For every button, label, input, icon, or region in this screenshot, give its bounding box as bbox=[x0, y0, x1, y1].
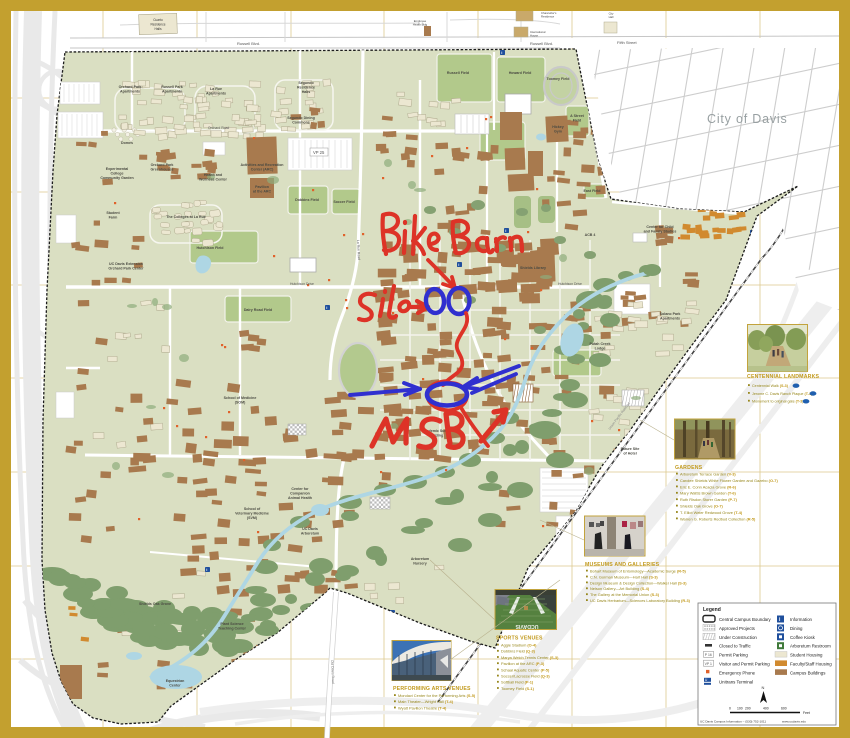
svg-text:Hutchison Drive: Hutchison Drive bbox=[558, 282, 582, 286]
svg-text:Hutchison Field: Hutchison Field bbox=[197, 246, 224, 250]
svg-text:Farm: Farm bbox=[109, 216, 118, 220]
svg-text:Orchard Park: Orchard Park bbox=[119, 85, 142, 89]
svg-text:The Colleges at La Rue: The Colleges at La Rue bbox=[166, 215, 206, 219]
svg-text:Mondavi Center for the Perform: Mondavi Center for the Performing Arts (… bbox=[398, 693, 476, 698]
svg-text:Aggie Stadium (O-4): Aggie Stadium (O-4) bbox=[501, 643, 537, 648]
svg-text:Community Garden: Community Garden bbox=[100, 176, 133, 180]
svg-text:Greenhouses: Greenhouses bbox=[151, 168, 174, 172]
svg-text:Dobbins Field: Dobbins Field bbox=[295, 198, 319, 202]
svg-text:Center (ARC): Center (ARC) bbox=[251, 168, 274, 172]
svg-text:Approved Projects: Approved Projects bbox=[719, 626, 756, 631]
svg-text:Arboretum: Arboretum bbox=[411, 557, 429, 561]
svg-text:Health Bldg: Health Bldg bbox=[413, 23, 428, 27]
svg-text:Commons: Commons bbox=[292, 121, 310, 125]
svg-text:(SVM): (SVM) bbox=[247, 516, 258, 520]
svg-text:Campus Buildings: Campus Buildings bbox=[790, 670, 826, 675]
svg-text:Cuarto: Cuarto bbox=[153, 18, 163, 22]
svg-text:Arboretum Restroom: Arboretum Restroom bbox=[790, 644, 831, 649]
svg-text:VP 25: VP 25 bbox=[313, 150, 325, 155]
svg-text:East Field: East Field bbox=[584, 189, 601, 193]
svg-text:City of Davis: City of Davis bbox=[707, 112, 788, 126]
svg-text:Wellness Center: Wellness Center bbox=[199, 178, 227, 182]
svg-text:Teaching Center: Teaching Center bbox=[218, 627, 246, 631]
svg-text:House: House bbox=[530, 34, 539, 38]
svg-text:Orchard Park Center: Orchard Park Center bbox=[108, 267, 144, 271]
svg-text:T. Elliot Weier Redwood Grove: T. Elliot Weier Redwood Grove (T-4) bbox=[680, 510, 743, 515]
svg-text:Center for Child: Center for Child bbox=[646, 225, 673, 229]
svg-text:Plant Science: Plant Science bbox=[220, 622, 243, 626]
svg-text:Coffee Kiosk: Coffee Kiosk bbox=[790, 635, 816, 640]
svg-text:Design Museum & Design Collect: Design Museum & Design Collection—Walker… bbox=[590, 580, 687, 585]
svg-text:Central Campus Boundary: Central Campus Boundary bbox=[719, 617, 772, 622]
svg-text:Residence: Residence bbox=[541, 15, 555, 19]
svg-text:Equestrian: Equestrian bbox=[166, 679, 185, 683]
svg-text:Apartments: Apartments bbox=[162, 90, 182, 94]
svg-text:Closed to Traffic: Closed to Traffic bbox=[719, 644, 751, 649]
svg-text:Toomey Field: Toomey Field bbox=[547, 77, 570, 81]
svg-text:400: 400 bbox=[763, 707, 769, 711]
svg-text:Residence: Residence bbox=[150, 23, 165, 27]
svg-text:Information: Information bbox=[790, 617, 813, 622]
svg-text:Dairy Road Field: Dairy Road Field bbox=[244, 308, 272, 312]
svg-text:of Hotel: of Hotel bbox=[623, 452, 636, 456]
svg-text:Russell Blvd.: Russell Blvd. bbox=[530, 41, 553, 46]
svg-text:i: i bbox=[458, 262, 459, 267]
svg-text:i: i bbox=[206, 567, 207, 572]
svg-text:Shields Oak Grove: Shields Oak Grove bbox=[139, 602, 171, 606]
svg-text:Visitor and Permit Parking: Visitor and Permit Parking bbox=[719, 662, 770, 667]
svg-text:Shields Library: Shields Library bbox=[520, 266, 546, 270]
svg-text:Activities and Recreation: Activities and Recreation bbox=[241, 163, 284, 167]
svg-text:College: College bbox=[111, 172, 124, 176]
svg-text:Eric E. Conn Acacia Grove (R-6: Eric E. Conn Acacia Grove (R-6) bbox=[680, 484, 737, 489]
svg-text:UC Davis Extension: UC Davis Extension bbox=[109, 262, 143, 266]
svg-text:Ruth Risdon Storer Garden (P-7: Ruth Risdon Storer Garden (P-7) bbox=[680, 497, 738, 502]
svg-text:Bohart Museum of Entomology—Ac: Bohart Museum of Entomology—Academic Sur… bbox=[590, 569, 687, 574]
svg-text:i: i bbox=[501, 50, 502, 55]
svg-text:200: 200 bbox=[745, 707, 751, 711]
svg-text:N: N bbox=[762, 685, 765, 690]
svg-text:C.N. Gorman Museum—Hart Hall (: C.N. Gorman Museum—Hart Hall (S-3) bbox=[590, 574, 658, 579]
svg-text:Centennial Walk (S-3): Centennial Walk (S-3) bbox=[752, 384, 789, 388]
svg-text:Pavilion: Pavilion bbox=[255, 185, 269, 189]
svg-text:Carolee Shields White Flower G: Carolee Shields White Flower Garden and … bbox=[680, 478, 778, 483]
svg-text:Dining: Dining bbox=[790, 626, 803, 631]
svg-text:SPORTS VENUES: SPORTS VENUES bbox=[496, 636, 543, 642]
svg-text:UC Davis: UC Davis bbox=[302, 527, 318, 531]
svg-text:600: 600 bbox=[781, 707, 787, 711]
svg-text:CENTENNIAL LANDMARKS: CENTENNIAL LANDMARKS bbox=[747, 374, 820, 380]
svg-text:Wyatt Pavilion Theatre (T-4): Wyatt Pavilion Theatre (T-4) bbox=[398, 705, 447, 710]
svg-text:Schaal Aquatic Center (P-5): Schaal Aquatic Center (P-5) bbox=[501, 667, 550, 672]
svg-text:A Street: A Street bbox=[570, 114, 584, 118]
svg-text:PERFORMING ARTS VENUES: PERFORMING ARTS VENUES bbox=[393, 686, 471, 692]
svg-text:Feet: Feet bbox=[803, 711, 810, 715]
svg-text:Softball Field (P-1): Softball Field (P-1) bbox=[501, 680, 534, 685]
svg-text:Halls: Halls bbox=[302, 90, 311, 94]
svg-text:Apartments: Apartments bbox=[120, 90, 140, 94]
svg-text:i: i bbox=[326, 305, 327, 310]
svg-text:Faculty/Staff Housing: Faculty/Staff Housing bbox=[790, 662, 832, 667]
svg-text:Solano Park: Solano Park bbox=[660, 312, 681, 316]
svg-text:Residence: Residence bbox=[297, 86, 315, 90]
svg-text:100: 100 bbox=[737, 707, 743, 711]
svg-text:Mary Wattis Brown Garden (T-6): Mary Wattis Brown Garden (T-6) bbox=[680, 491, 737, 496]
svg-text:Emergency Phone: Emergency Phone bbox=[719, 670, 756, 675]
svg-text:Student: Student bbox=[106, 211, 120, 215]
svg-text:Russell Blvd.: Russell Blvd. bbox=[237, 41, 260, 46]
svg-text:UC Davis Campus Information –: UC Davis Campus Information – (530) 752-… bbox=[700, 720, 766, 724]
svg-text:Russell Park: Russell Park bbox=[161, 85, 183, 89]
svg-text:Toomey Field (S-1): Toomey Field (S-1) bbox=[501, 686, 535, 691]
svg-text:Center: Center bbox=[169, 684, 181, 688]
svg-text:Segundo: Segundo bbox=[298, 81, 314, 85]
svg-text:Main Theater—Wright Hall (T-4): Main Theater—Wright Hall (T-4) bbox=[398, 699, 454, 704]
svg-text:Russell Field: Russell Field bbox=[447, 71, 469, 75]
svg-text:Hall: Hall bbox=[609, 15, 614, 19]
svg-text:P 16: P 16 bbox=[705, 653, 712, 657]
svg-text:La Rue: La Rue bbox=[210, 87, 222, 91]
svg-text:Pavilion at the ARC (P-3): Pavilion at the ARC (P-3) bbox=[501, 661, 545, 666]
svg-text:Orchard Road: Orchard Road bbox=[208, 126, 229, 130]
svg-text:Future Site: Future Site bbox=[621, 447, 640, 451]
svg-text:Shields Oak Grove (O-7): Shields Oak Grove (O-7) bbox=[680, 504, 724, 509]
svg-text:Dobbins Field (Q-3): Dobbins Field (Q-3) bbox=[501, 649, 536, 654]
svg-text:(SOM): (SOM) bbox=[235, 401, 246, 405]
svg-text:Companion: Companion bbox=[290, 492, 310, 496]
svg-text:i: i bbox=[505, 228, 506, 233]
svg-text:Warren G. Roberts Redbud Colle: Warren G. Roberts Redbud Collection (R-5… bbox=[680, 516, 756, 521]
svg-text:UCDAVIS: UCDAVIS bbox=[515, 623, 539, 629]
svg-text:Marya Welch Tennis Center (S-3: Marya Welch Tennis Center (S-3) bbox=[501, 655, 559, 660]
svg-text:Putah Creek: Putah Creek bbox=[590, 342, 611, 346]
svg-text:0: 0 bbox=[729, 707, 731, 711]
svg-text:GARDENS: GARDENS bbox=[675, 465, 703, 471]
svg-text:at the ARC: at the ARC bbox=[253, 190, 272, 194]
svg-text:Soccer Field: Soccer Field bbox=[333, 200, 354, 204]
svg-text:Gym: Gym bbox=[554, 130, 562, 134]
svg-text:Segundo Dining: Segundo Dining bbox=[287, 116, 315, 120]
svg-text:Center for: Center for bbox=[291, 487, 309, 491]
svg-text:Nelson Gallery—Art Building (S: Nelson Gallery—Art Building (S-4) bbox=[590, 586, 650, 591]
svg-text:Fifth Street: Fifth Street bbox=[617, 40, 637, 45]
svg-text:Legend: Legend bbox=[703, 607, 721, 613]
svg-text:UC Davis Herbarium—Sciences La: UC Davis Herbarium—Sciences Laboratory B… bbox=[590, 598, 691, 603]
svg-text:Veterinary Medicine: Veterinary Medicine bbox=[235, 512, 269, 516]
svg-text:Hutchison Drive: Hutchison Drive bbox=[290, 282, 314, 286]
svg-text:VP 1: VP 1 bbox=[705, 662, 712, 666]
svg-text:School of: School of bbox=[244, 507, 261, 511]
svg-text:ACB 4: ACB 4 bbox=[585, 233, 596, 237]
svg-text:and Family Studies: and Family Studies bbox=[644, 230, 677, 234]
svg-text:Student Housing: Student Housing bbox=[790, 653, 823, 658]
svg-text:The Gallery at the Memorial Un: The Gallery at the Memorial Union (S-3) bbox=[590, 592, 660, 597]
svg-text:Orchard Park: Orchard Park bbox=[151, 163, 174, 167]
svg-text:Experimental: Experimental bbox=[106, 167, 129, 171]
svg-text:MUSEUMS AND GALLERIES: MUSEUMS AND GALLERIES bbox=[585, 562, 660, 568]
svg-text:Arboretum Terrace Garden (V-3): Arboretum Terrace Garden (V-3) bbox=[680, 472, 736, 477]
svg-text:Jerome C. Davis Ranch Plaque (: Jerome C. Davis Ranch Plaque (T-3) bbox=[752, 392, 813, 396]
svg-text:Soccer/Lacrosse Field (Q-3): Soccer/Lacrosse Field (Q-3) bbox=[501, 674, 550, 679]
svg-text:Lodge: Lodge bbox=[595, 347, 606, 351]
svg-text:Permit Parking: Permit Parking bbox=[719, 653, 748, 658]
svg-text:Apartments: Apartments bbox=[660, 317, 680, 321]
svg-text:Nursery: Nursery bbox=[413, 562, 427, 566]
svg-text:Field: Field bbox=[573, 119, 581, 123]
svg-text:Health and: Health and bbox=[204, 173, 222, 177]
svg-text:www.ucdavis.edu: www.ucdavis.edu bbox=[782, 720, 806, 724]
svg-text:Unitrans Terminal: Unitrans Terminal bbox=[719, 679, 753, 684]
svg-text:Animal Health: Animal Health bbox=[288, 496, 312, 500]
svg-text:Hickey: Hickey bbox=[552, 125, 564, 129]
svg-text:Under Construction: Under Construction bbox=[719, 635, 757, 640]
svg-text:Halls: Halls bbox=[154, 27, 161, 31]
svg-text:Apartments: Apartments bbox=[206, 92, 226, 96]
svg-text:School of Medicine: School of Medicine bbox=[224, 396, 257, 400]
svg-text:Howard Field: Howard Field bbox=[509, 71, 532, 75]
svg-text:Monument to original gate (T-3: Monument to original gate (T-3) bbox=[752, 400, 804, 404]
svg-text:Arboretum: Arboretum bbox=[301, 532, 319, 536]
svg-text:Domes: Domes bbox=[121, 141, 133, 145]
